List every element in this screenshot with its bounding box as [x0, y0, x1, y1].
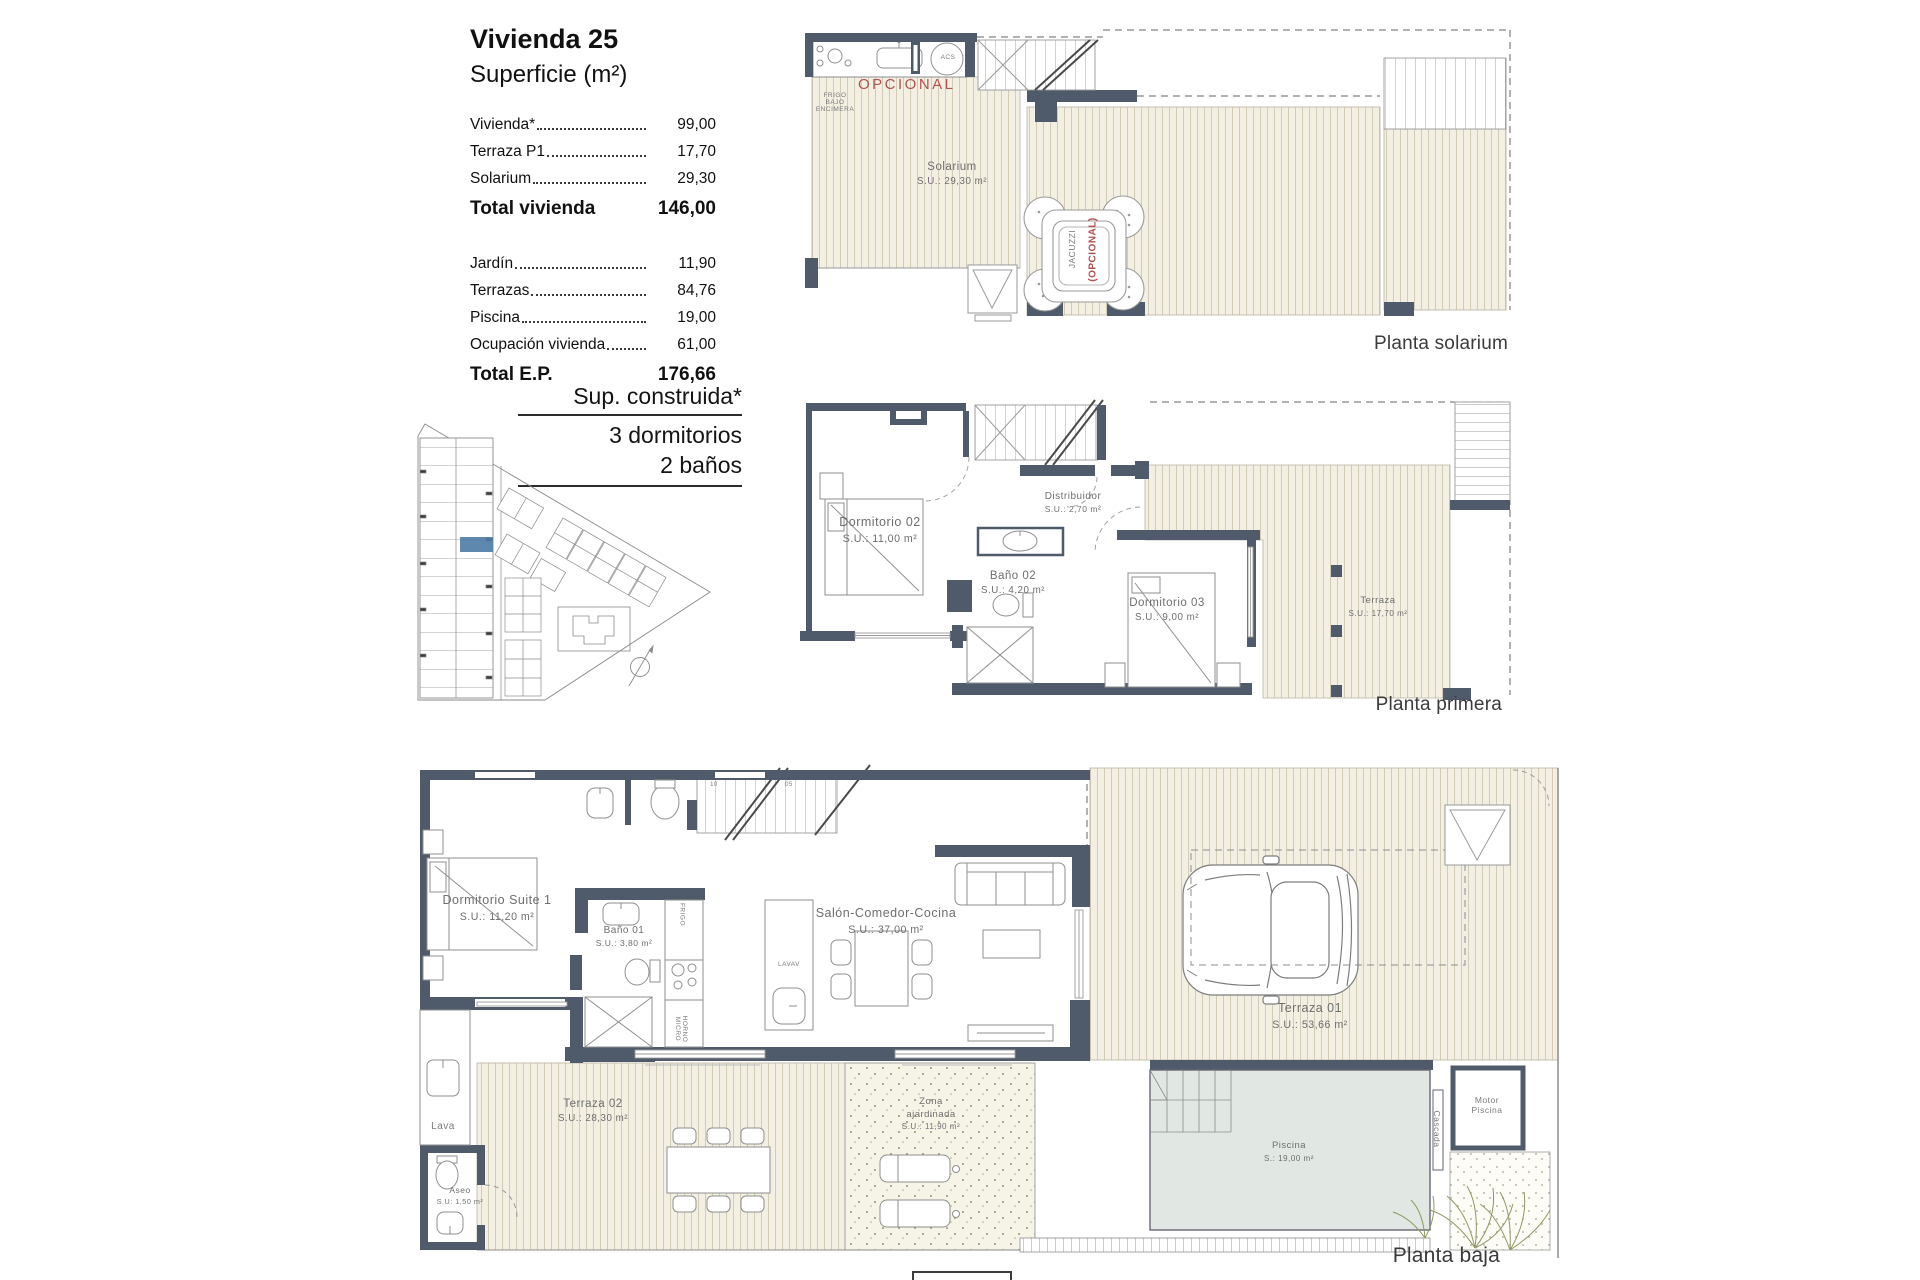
- surface-row: Solarium 29,30: [470, 161, 716, 188]
- baja-upper-dashed: [835, 772, 1087, 845]
- room-label-zona-ajardinada: Zona ajardinada S.U.: 11,90 m²: [881, 1096, 981, 1133]
- surface-row: Jardín 11,90: [470, 246, 716, 273]
- site-housing-rows: [420, 438, 493, 698]
- total-value: 146,00: [658, 198, 716, 220]
- surface-row: Terrazas 84,76: [470, 273, 716, 300]
- dotted-leader: [547, 155, 646, 157]
- jacuzzi-opcional-label: (OPCIONAL): [1088, 205, 1099, 295]
- room-label-salon: Salón-Comedor-Cocina S.U.: 37,00 m²: [806, 905, 966, 937]
- bed-dormitorio-03: [1105, 573, 1240, 687]
- caption-planta-baja: Planta baja: [1200, 1244, 1500, 1268]
- dotted-leader: [522, 321, 646, 323]
- dotted-leader: [531, 294, 646, 296]
- floorplan-sheet: Vivienda 25 Superficie (m²) Vivienda* 99…: [0, 0, 1920, 1280]
- row-value: 29,30: [652, 170, 716, 188]
- site-highlighted-unit: [460, 537, 493, 552]
- primera-plan-drawing: [795, 395, 1515, 715]
- site-plan-drawing: [413, 410, 713, 708]
- row-label: Piscina: [470, 309, 520, 327]
- room-label-dormitorio-02: Dormitorio 02 S.U.: 11,00 m²: [820, 514, 940, 546]
- baja-plan-drawing: [415, 760, 1565, 1272]
- caption-planta-solarium: Planta solarium: [1208, 333, 1508, 355]
- room-label-distribuidor: Distribuidor S.U.: 2,70 m²: [1013, 490, 1133, 515]
- dotted-leader: [537, 128, 646, 130]
- acs-label: ACS: [936, 54, 960, 61]
- dining-table: [831, 931, 932, 1006]
- row-value: 99,00: [652, 116, 716, 134]
- bathroom-02-fixtures: [967, 528, 1063, 683]
- car: [1183, 856, 1358, 1004]
- caption-planta-primera: Planta primera: [1202, 694, 1502, 716]
- summary-panel: Vivienda 25 Superficie (m²) Vivienda* 99…: [470, 24, 716, 386]
- row-value: 61,00: [652, 336, 716, 354]
- room-label-dormitorio-03: Dormitorio 03 S.U.: 9,00 m²: [1107, 596, 1227, 625]
- room-label-terraza-01: Terraza 01 S.U.: 53,66 m²: [1240, 1000, 1380, 1032]
- room-label-bano-02: Baño 02 S.U.: 4,20 m²: [953, 569, 1073, 598]
- surface-row: Terraza P1 17,70: [470, 134, 716, 161]
- page-title: Vivienda 25: [470, 24, 716, 55]
- compass-icon: [629, 646, 653, 686]
- room-label-dormitorio-suite: Dormitorio Suite 1 S.U.: 11,20 m²: [427, 892, 567, 924]
- row-value: 19,00: [652, 309, 716, 327]
- frigo-label: FRIGO: [679, 890, 686, 940]
- stair-number-10: 10: [705, 782, 723, 788]
- coffee-table: [983, 930, 1040, 958]
- jacuzzi: [1024, 196, 1144, 311]
- lava-label: Lava: [418, 1121, 468, 1132]
- lavav-label: LAVAV: [764, 961, 814, 968]
- row-label: Terrazas: [470, 282, 529, 300]
- frigo-bajo-encimera-label: FRIGO BAJO ENCIMERA: [810, 92, 860, 113]
- site-cluster-right: [546, 518, 666, 607]
- sofa: [955, 863, 1065, 905]
- room-label-piscina: Piscina S.: 19,00 m²: [1229, 1140, 1349, 1164]
- motor-piscina-label: Motor Piscina: [1447, 1095, 1527, 1115]
- surface-subtitle: Superficie (m²): [470, 61, 716, 89]
- site-main-plot: [558, 607, 630, 651]
- row-label: Vivienda*: [470, 116, 535, 134]
- total-label: Total vivienda: [470, 198, 595, 220]
- stair-number-05: 05: [780, 782, 798, 788]
- jacuzzi-label: JACUZZI: [1067, 204, 1077, 294]
- horno-micro-label: HORNO MICRO: [674, 1001, 688, 1057]
- total-vivienda-row: Total vivienda 146,00: [470, 188, 716, 220]
- surface-row: Piscina 19,00: [470, 300, 716, 327]
- row-label: Terraza P1: [470, 143, 545, 161]
- surface-row: Vivienda* 99,00: [470, 107, 716, 134]
- dotted-leader: [515, 267, 646, 269]
- outdoor-dining-table: [667, 1128, 770, 1212]
- tv-bench: [968, 1025, 1053, 1041]
- site-cluster-lower: [505, 578, 541, 696]
- dotted-leader: [607, 348, 646, 350]
- row-value: 11,90: [652, 255, 716, 273]
- door-gap: [1095, 465, 1111, 476]
- solarium-vent-box: [968, 265, 1017, 321]
- room-label-terraza-02: Terraza 02 S.U.: 28,30 m²: [523, 1097, 663, 1126]
- surface-row: Ocupación vivienda 61,00: [470, 327, 716, 354]
- row-value: 17,70: [652, 143, 716, 161]
- niche-gap: [896, 411, 921, 419]
- dotted-leader: [533, 182, 646, 184]
- row-label: Solarium: [470, 170, 531, 188]
- cascada-label: Cascada: [1432, 1089, 1442, 1169]
- suite-bathroom-fixtures: [587, 780, 679, 819]
- room-label-solarium: Solarium S.U.: 29,30 m²: [897, 160, 1007, 189]
- row-label: Jardín: [470, 255, 513, 273]
- opcional-label: OPCIONAL: [858, 76, 956, 93]
- room-label-aseo: Aseo S.U: 1,50 m²: [415, 1185, 505, 1207]
- row-label: Ocupación vivienda: [470, 336, 605, 354]
- room-label-bano-01: Baño 01 S.U.: 3,80 m²: [564, 924, 684, 949]
- cutoff-title-block: [912, 1271, 1012, 1280]
- row-value: 84,76: [652, 282, 716, 300]
- room-label-terraza-p1: Terraza S.U.: 17,70 m²: [1318, 595, 1438, 619]
